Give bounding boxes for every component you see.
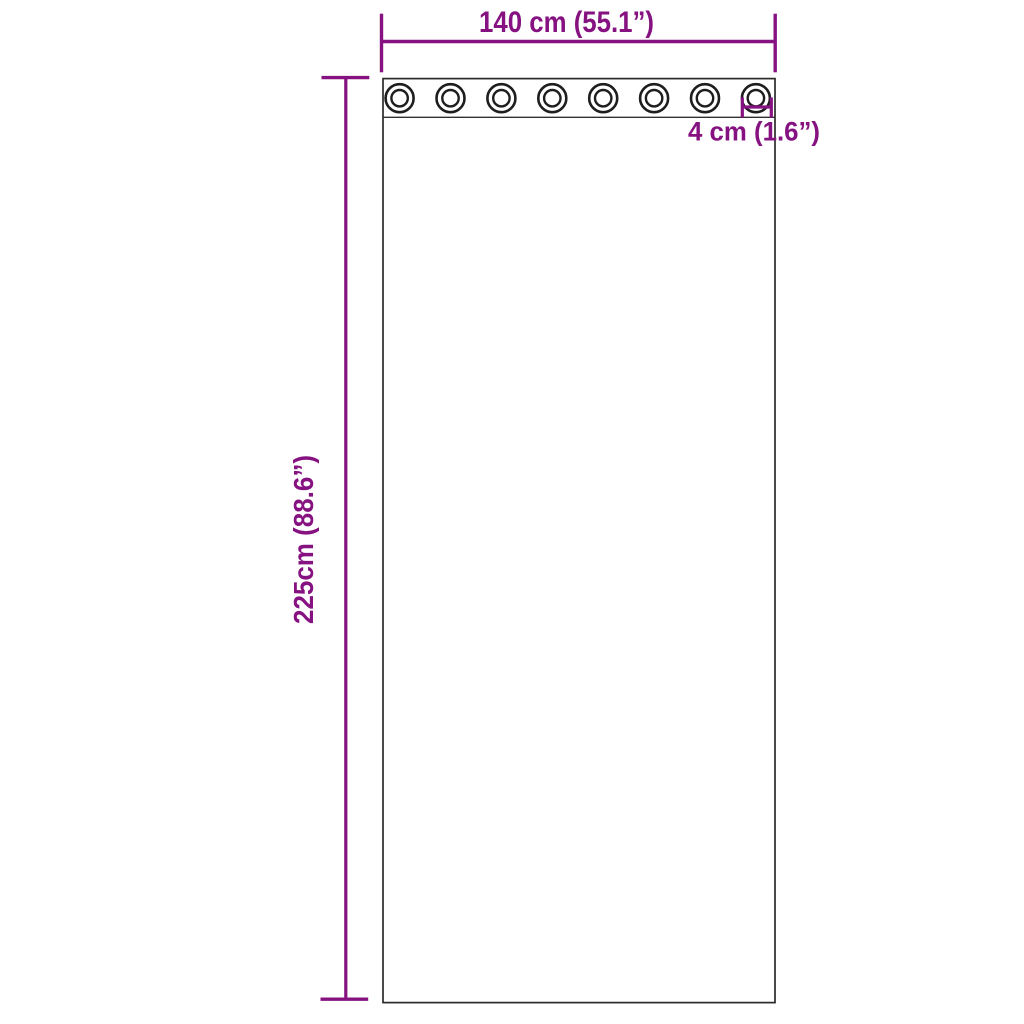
svg-text:225cm (88.6”): 225cm (88.6”)	[288, 455, 319, 624]
svg-text:140 cm (55.1”): 140 cm (55.1”)	[479, 6, 654, 39]
svg-text:4 cm (1.6”): 4 cm (1.6”)	[688, 116, 820, 146]
